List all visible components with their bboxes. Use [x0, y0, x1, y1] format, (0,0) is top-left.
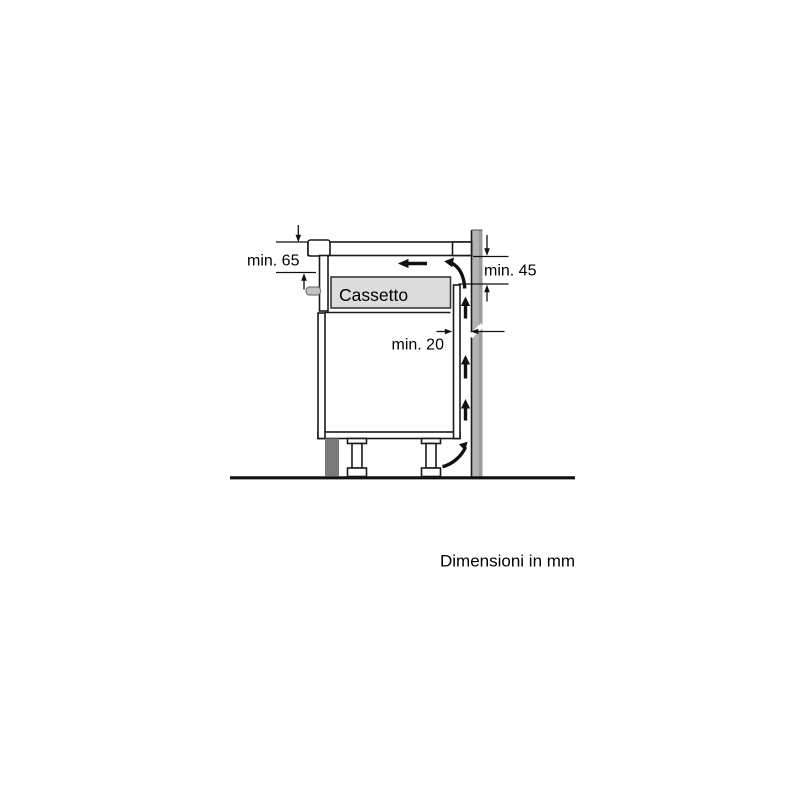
hob-installation-diagram: Cassetto — [0, 0, 800, 800]
airflow-arrow-curve-bottom — [443, 442, 468, 467]
leg-foot — [348, 468, 367, 477]
drawer-label: Cassetto — [339, 285, 408, 305]
drawer: Cassetto — [331, 277, 451, 308]
units-caption: Dimensioni in mm — [440, 552, 575, 571]
airflow-arrow-left — [398, 259, 427, 268]
label-min-65: min. 65 — [247, 253, 300, 270]
airflow-arrow-up-2 — [461, 355, 470, 379]
worktop-band — [308, 242, 472, 256]
leg-foot — [422, 468, 441, 477]
wall — [472, 230, 483, 478]
hob-fixing-clamp — [306, 287, 321, 295]
label-min-45: min. 45 — [484, 263, 537, 280]
diagram-page: Cassetto — [0, 0, 800, 800]
cabinet — [318, 285, 460, 477]
dimension-wall-gap: min. 20 — [392, 325, 505, 354]
cabinet-leg-left — [348, 439, 367, 477]
cabinet-back-panel — [454, 285, 461, 439]
airflow-arrow-up-1 — [461, 297, 470, 319]
cabinet-front-panel — [318, 313, 325, 439]
cabinet-bottom-panel — [318, 432, 460, 439]
dimension-hob-depth: min. 65 — [247, 225, 316, 290]
leg-column — [426, 444, 436, 469]
hob-front-housing — [320, 256, 329, 312]
wall-edge-strip — [479, 230, 483, 478]
worktop-left-block — [308, 240, 330, 256]
leg-column — [352, 444, 362, 469]
plinth-panel — [325, 439, 339, 477]
worktop-right-block — [453, 242, 472, 256]
airflow-arrow-up-3 — [461, 399, 470, 421]
label-min-20: min. 20 — [392, 337, 445, 354]
cabinet-leg-right — [422, 439, 441, 477]
